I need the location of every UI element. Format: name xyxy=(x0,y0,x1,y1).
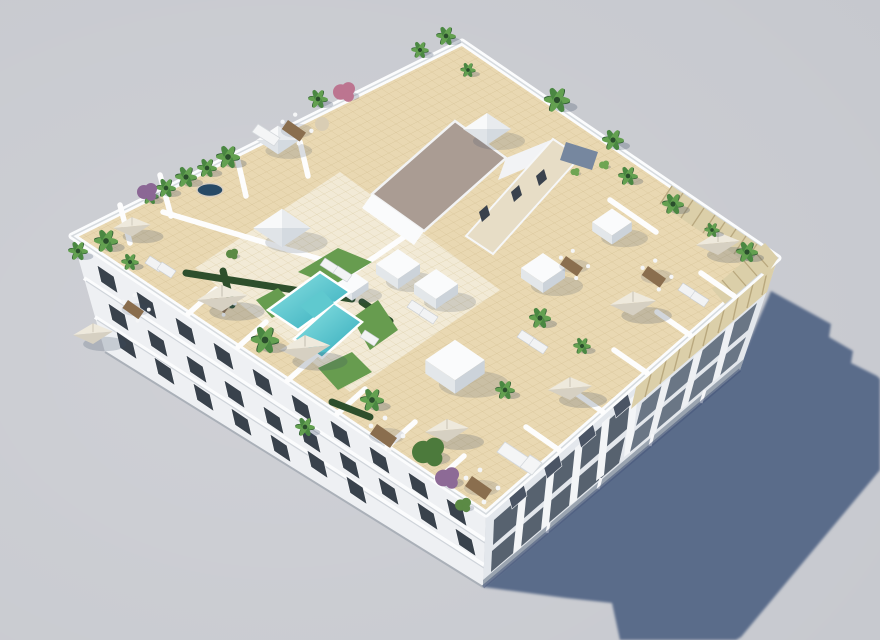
round-rug xyxy=(315,117,329,131)
aerial-building-render xyxy=(0,0,880,640)
render-viewport xyxy=(0,0,880,640)
